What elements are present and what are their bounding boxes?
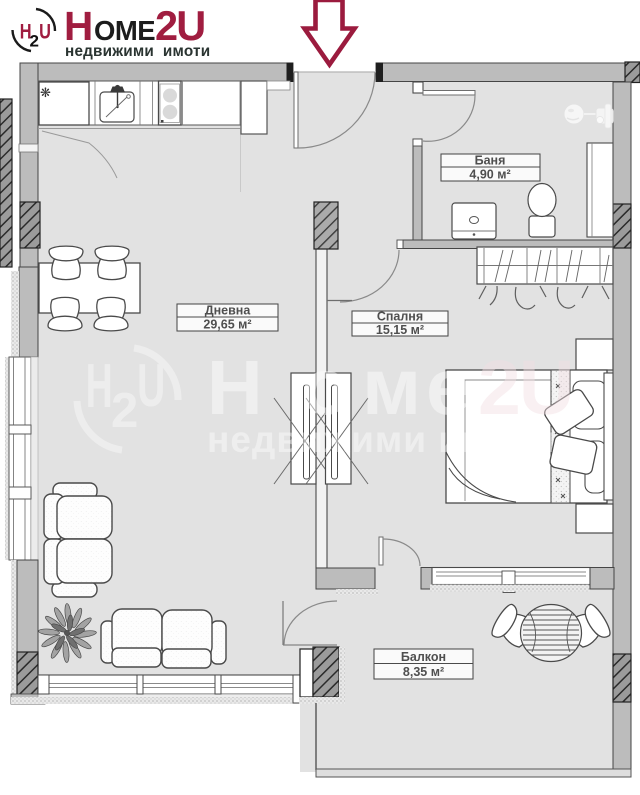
svg-text:Баня: Баня bbox=[475, 154, 506, 168]
svg-text:Балкон: Балкон bbox=[401, 650, 446, 664]
svg-text:4,90 м²: 4,90 м² bbox=[469, 168, 510, 182]
svg-text:недвижими имоти: недвижими имоти bbox=[207, 419, 555, 460]
svg-text:е: е bbox=[426, 342, 471, 431]
svg-text:29,65 м²: 29,65 м² bbox=[203, 318, 251, 332]
svg-text:2: 2 bbox=[30, 32, 39, 51]
svg-text:U: U bbox=[137, 351, 165, 419]
svg-text:о: о bbox=[301, 342, 350, 431]
svg-text:недвижими имоти: недвижими имоти bbox=[65, 43, 210, 60]
svg-text:м: м bbox=[362, 342, 421, 431]
svg-text:15,15 м²: 15,15 м² bbox=[376, 323, 424, 337]
svg-text:❋: ❋ bbox=[40, 85, 51, 100]
svg-text:Спалня: Спалня bbox=[377, 310, 423, 324]
svg-text:U: U bbox=[39, 20, 51, 44]
svg-text:2U: 2U bbox=[155, 2, 204, 49]
svg-text:8,35 м²: 8,35 м² bbox=[403, 665, 444, 679]
svg-text:H: H bbox=[86, 351, 113, 420]
svg-text:OME: OME bbox=[94, 15, 155, 46]
svg-text:Дневна: Дневна bbox=[205, 304, 252, 318]
svg-text:2: 2 bbox=[111, 384, 138, 438]
